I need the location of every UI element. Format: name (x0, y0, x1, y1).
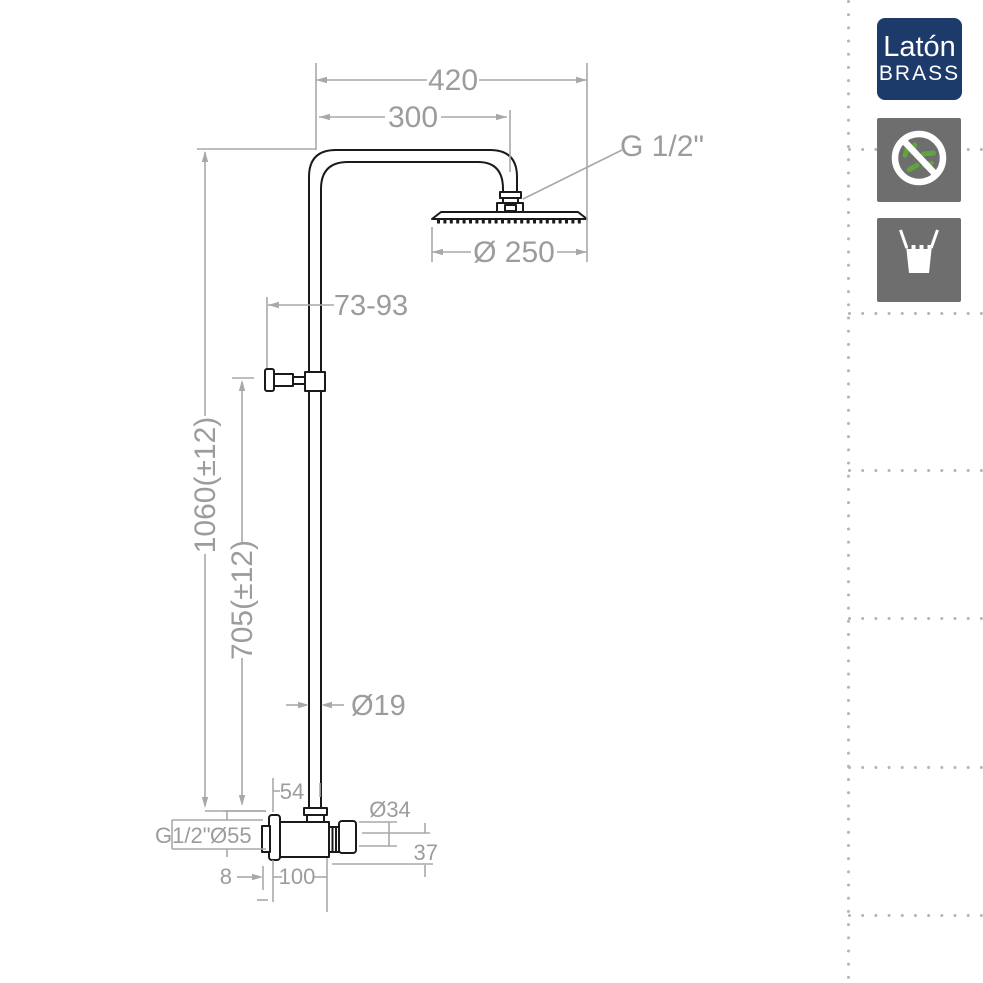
dim-inlet-thread-label: G1/2" (155, 823, 211, 848)
dim-pipe-diameter-label: Ø19 (351, 690, 406, 722)
dimension-arrowheads (202, 77, 587, 880)
no-bacteria-glyph (877, 118, 961, 202)
bracket-stem (274, 374, 293, 386)
shower-column-technical-drawing: 420 300 G 1/2" Ø 250 73-93 1060(±12) 705… (0, 0, 983, 983)
dim-flange-diameter-label: Ø55 (210, 823, 252, 848)
valve-wall-nipple (262, 826, 270, 852)
valve-handle-cap (339, 821, 356, 853)
dim-total-height-label: 1060(±12) (189, 417, 222, 554)
material-badge: Latón BRASS (877, 18, 962, 100)
valve-handle-stem (329, 827, 339, 852)
dim-arm-reach-label: 300 (388, 101, 438, 134)
dim-valve-offset-label: 54 (280, 779, 304, 804)
dim-handle-diameter-label: Ø34 (369, 797, 411, 822)
dim-top-width-label: 420 (428, 64, 478, 97)
dim-bracket-range-label: 73-93 (334, 290, 408, 322)
valve-nut-upper (304, 808, 327, 815)
horizontal-dotted-separator-6 (848, 914, 983, 917)
product-spec-sheet: 420 300 G 1/2" Ø 250 73-93 1060(±12) 705… (0, 0, 983, 983)
dim-valve-length-label: 100 (279, 864, 316, 889)
shower-head-plate (432, 212, 587, 219)
dim-head-thread-label: G 1/2" (620, 130, 704, 163)
bracket-block (305, 372, 325, 391)
dim-nipple-depth-label: 8 (220, 864, 232, 889)
dim-handle-depth-label: 37 (414, 840, 438, 865)
material-badge-spanish: Latón (883, 32, 956, 62)
dim-head-diameter-label: Ø 250 (473, 236, 555, 269)
bracket-end-cap (265, 369, 274, 391)
horizontal-dotted-separator-3 (848, 469, 983, 472)
water-glass-glyph (877, 218, 961, 302)
no-bacteria-icon (877, 118, 961, 202)
horizontal-dotted-separator-5 (848, 766, 983, 769)
dim-riser-height-label: 705(±12) (226, 540, 259, 660)
valve-body (279, 822, 329, 857)
dimension-lines (172, 63, 622, 912)
horizontal-dotted-separator-2 (848, 312, 983, 315)
horizontal-dotted-separator-4 (848, 617, 983, 620)
head-mount-inner (505, 205, 516, 211)
water-glass-icon (877, 218, 961, 302)
bracket-neck (293, 377, 305, 384)
material-badge-english: BRASS (879, 62, 960, 86)
